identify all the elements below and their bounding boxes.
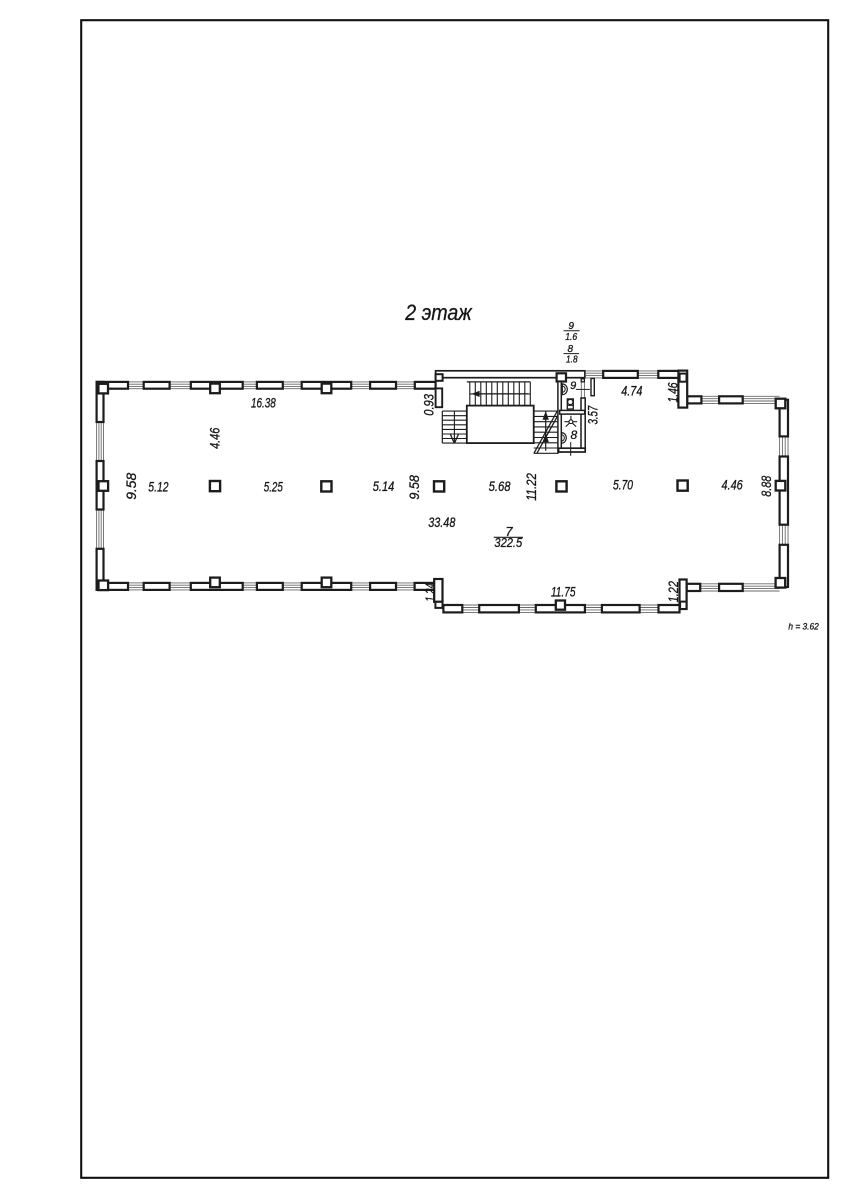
svg-text:0.93: 0.93 [422,394,437,416]
svg-text:4.74: 4.74 [621,383,642,398]
svg-text:5.25: 5.25 [264,479,283,494]
svg-text:11.22: 11.22 [524,473,539,501]
svg-text:5.68: 5.68 [489,479,511,494]
svg-text:8: 8 [570,428,577,442]
svg-text:5.70: 5.70 [613,477,633,492]
svg-text:1.46: 1.46 [666,382,681,402]
svg-text:h = 3.62: h = 3.62 [788,621,818,631]
svg-text:3.57: 3.57 [586,405,601,424]
svg-text:4.46: 4.46 [208,427,223,449]
svg-text:5.12: 5.12 [148,479,169,494]
svg-text:322.5: 322.5 [494,535,522,550]
svg-text:1.8: 1.8 [566,355,578,366]
svg-text:9.58: 9.58 [124,472,139,499]
svg-text:16.38: 16.38 [251,396,276,411]
svg-text:1.24: 1.24 [422,583,437,602]
svg-text:4.46: 4.46 [722,477,744,492]
svg-text:5.14: 5.14 [373,479,395,494]
svg-text:9.58: 9.58 [407,475,422,500]
svg-text:8.88: 8.88 [759,475,774,496]
svg-text:2 этаж: 2 этаж [404,300,473,325]
svg-text:11.75: 11.75 [551,585,576,600]
svg-text:9: 9 [570,380,576,392]
svg-text:1.6: 1.6 [565,332,577,343]
svg-text:1.22: 1.22 [666,581,681,603]
svg-text:33.48: 33.48 [428,515,455,530]
